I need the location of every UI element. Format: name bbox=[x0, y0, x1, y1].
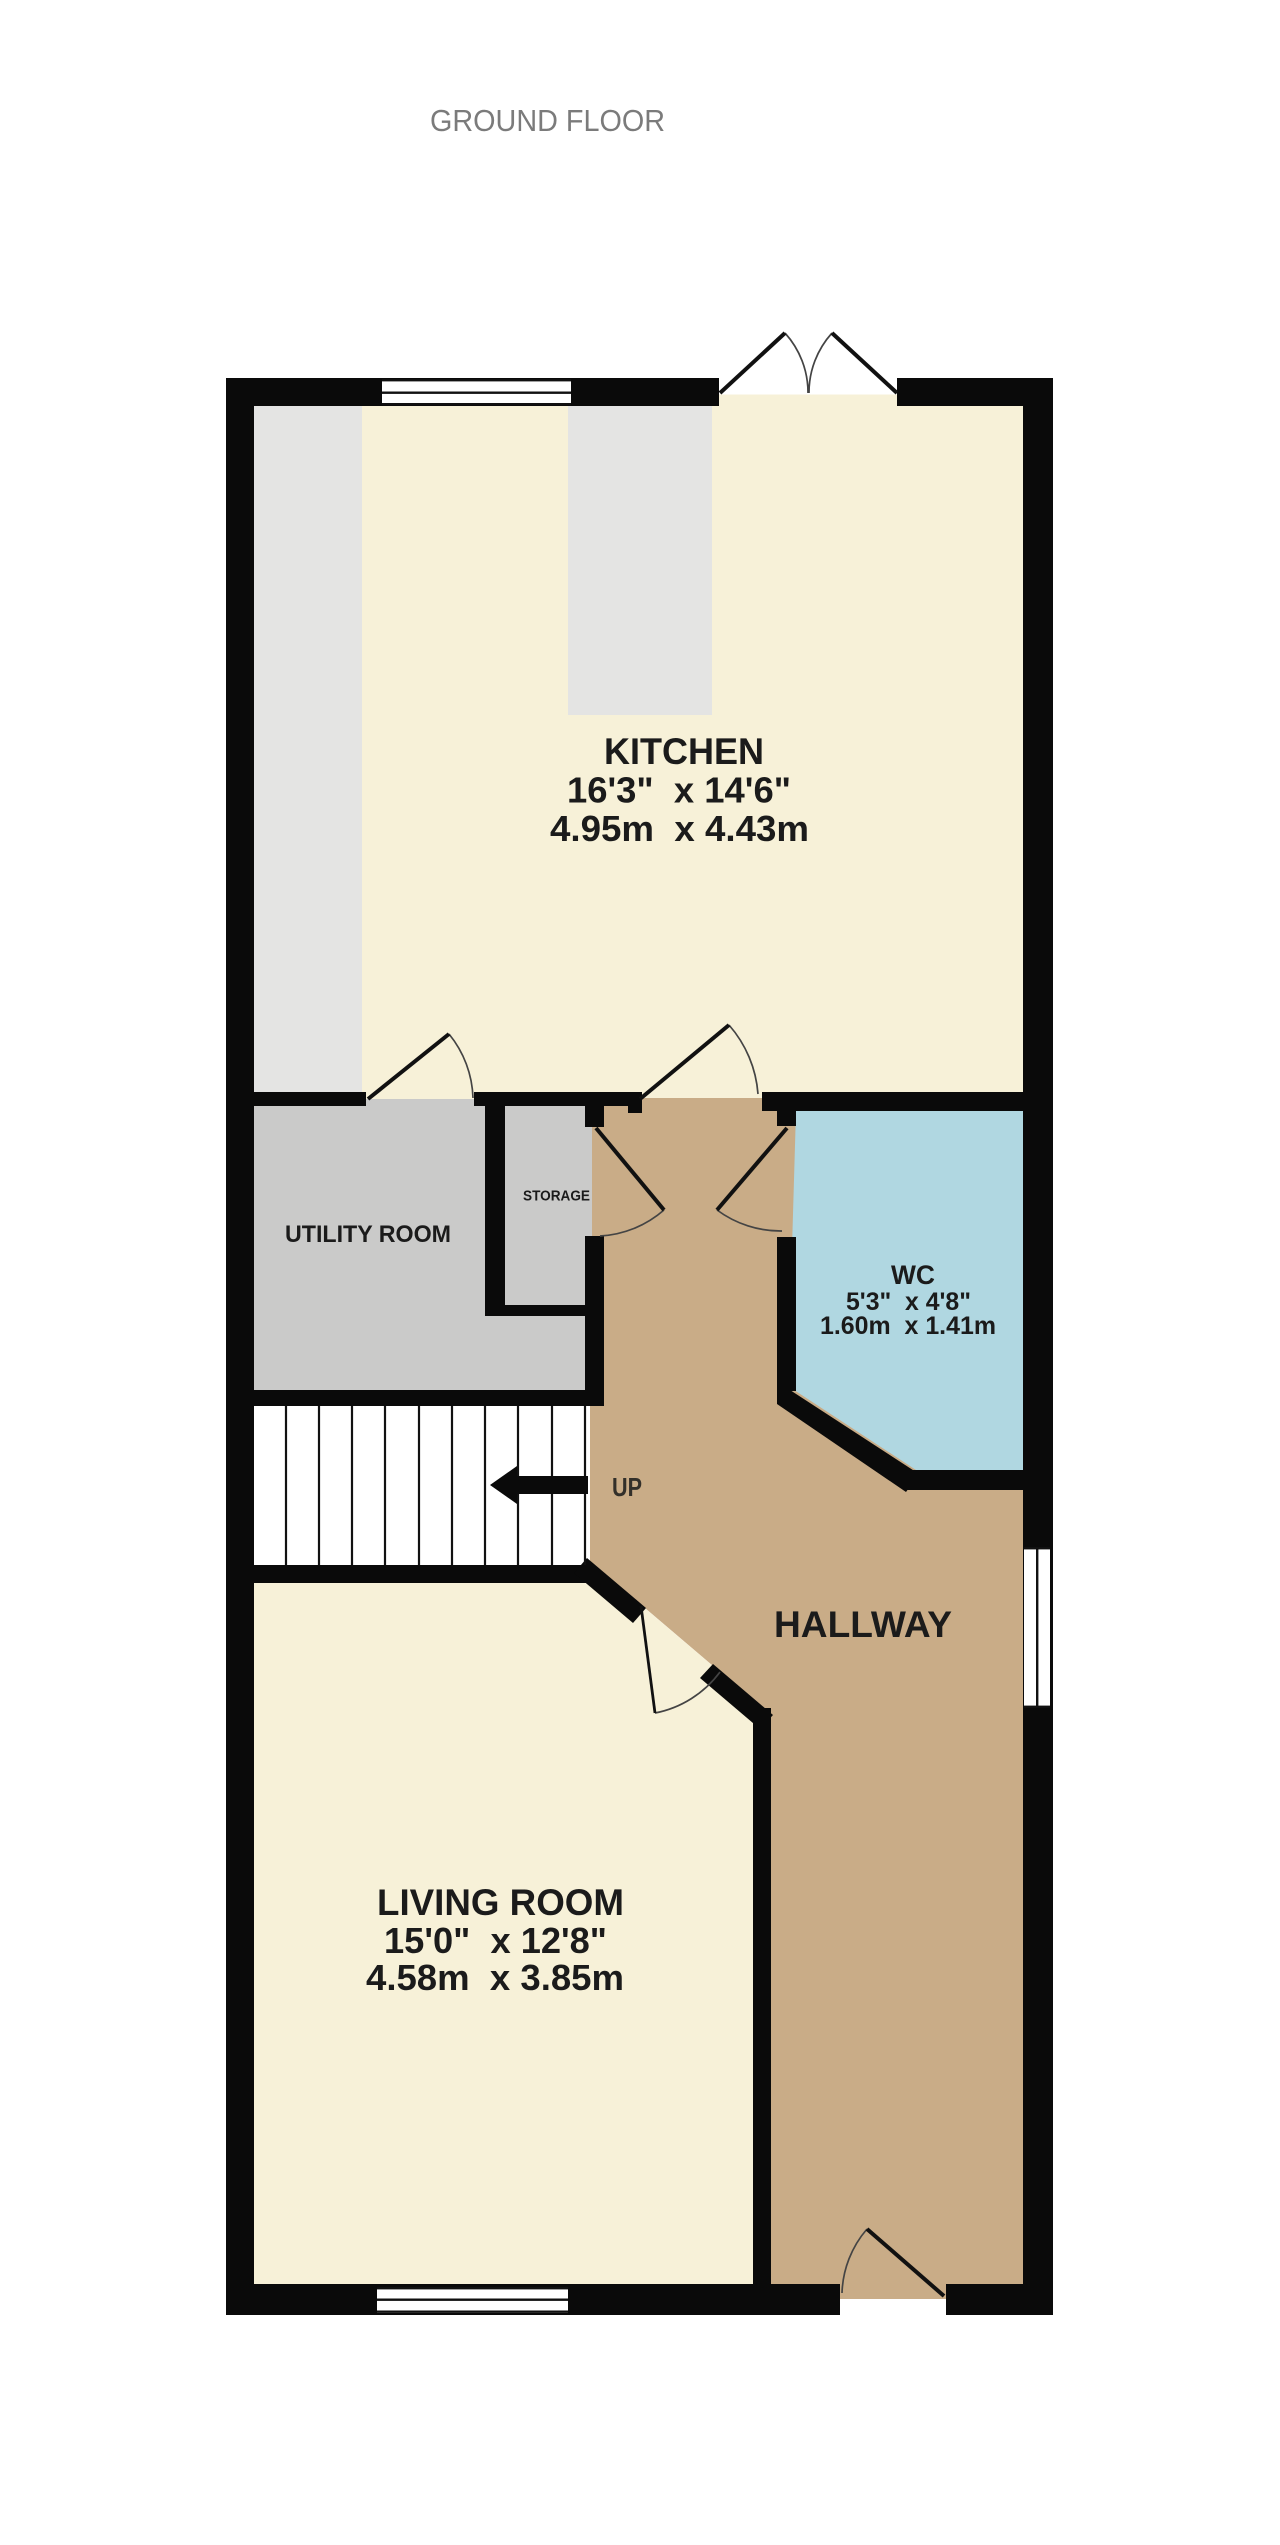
svg-text:4.95m x 4.43m: 4.95m x 4.43m bbox=[550, 808, 809, 849]
svg-text:16'3" x 14'6": 16'3" x 14'6" bbox=[567, 770, 791, 811]
svg-text:KITCHEN: KITCHEN bbox=[604, 731, 764, 772]
svg-text:LIVING ROOM: LIVING ROOM bbox=[377, 1882, 624, 1923]
svg-text:1.60m x 1.41m: 1.60m x 1.41m bbox=[820, 1312, 996, 1340]
svg-text:15'0" x 12'8": 15'0" x 12'8" bbox=[384, 1920, 607, 1961]
svg-text:WC: WC bbox=[891, 1260, 935, 1290]
svg-text:GROUND FLOOR: GROUND FLOOR bbox=[430, 103, 665, 138]
svg-text:UTILITY ROOM: UTILITY ROOM bbox=[285, 1221, 451, 1248]
svg-text:UP: UP bbox=[612, 1472, 642, 1502]
svg-text:HALLWAY: HALLWAY bbox=[774, 1604, 952, 1645]
svg-text:STORAGE: STORAGE bbox=[523, 1189, 590, 1205]
svg-text:4.58m x 3.85m: 4.58m x 3.85m bbox=[366, 1957, 624, 1998]
